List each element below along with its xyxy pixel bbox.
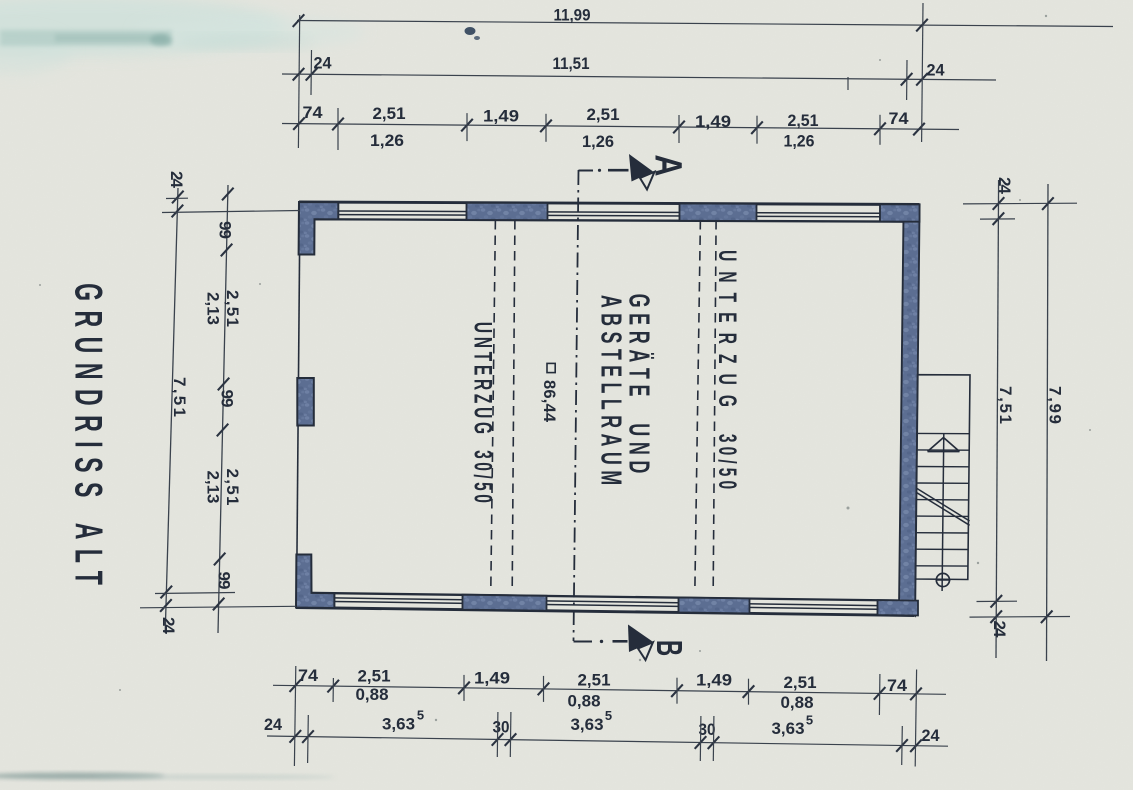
svg-text:99: 99: [215, 572, 234, 590]
svg-text:11,99: 11,99: [554, 6, 591, 25]
svg-text:30: 30: [493, 718, 510, 737]
svg-text:30/50: 30/50: [713, 434, 741, 489]
svg-text:2,51: 2,51: [358, 667, 391, 686]
svg-text:24: 24: [922, 726, 941, 745]
svg-text:2,51: 2,51: [578, 671, 611, 690]
svg-text:1,26: 1,26: [784, 132, 815, 151]
svg-text:2,13: 2,13: [204, 292, 223, 325]
svg-text:3,63: 3,63: [382, 715, 415, 734]
svg-text:0,88: 0,88: [356, 685, 389, 704]
svg-text:24: 24: [927, 61, 946, 80]
svg-text:2,51: 2,51: [788, 111, 819, 130]
svg-text:1,26: 1,26: [582, 132, 614, 151]
svg-text:1,49: 1,49: [696, 671, 732, 690]
svg-text:24: 24: [995, 177, 1014, 195]
svg-text:74: 74: [889, 109, 910, 128]
svg-text:1,49: 1,49: [474, 669, 510, 688]
svg-text:99: 99: [218, 390, 237, 408]
svg-text:24: 24: [264, 715, 283, 734]
svg-text:99: 99: [216, 221, 235, 239]
svg-text:7,51: 7,51: [996, 386, 1015, 424]
svg-text:74: 74: [298, 666, 319, 685]
svg-text:3,63: 3,63: [772, 719, 805, 738]
svg-text:2,51: 2,51: [784, 673, 817, 692]
svg-text:B: B: [649, 640, 689, 656]
svg-text:74: 74: [887, 676, 908, 695]
svg-text:24: 24: [167, 171, 186, 189]
svg-text:2,51: 2,51: [587, 105, 620, 124]
svg-text:7,51: 7,51: [170, 377, 189, 417]
svg-text:24: 24: [990, 621, 1009, 639]
svg-text:0,88: 0,88: [568, 692, 601, 711]
svg-text:ABSTELLRAUM: ABSTELLRAUM: [594, 295, 626, 485]
svg-text:A: A: [647, 155, 689, 177]
svg-text:24: 24: [159, 617, 178, 635]
svg-text:7,99: 7,99: [1046, 386, 1065, 424]
svg-text:24: 24: [314, 54, 333, 73]
svg-text:2,51: 2,51: [223, 469, 242, 506]
svg-text:1,49: 1,49: [483, 107, 519, 126]
svg-text:0,88: 0,88: [781, 693, 814, 712]
svg-text:2,51: 2,51: [223, 290, 242, 327]
svg-text:86,44: 86,44: [540, 380, 558, 423]
svg-text:30/50: 30/50: [468, 450, 496, 503]
svg-text:5: 5: [605, 708, 612, 723]
svg-text:1,26: 1,26: [370, 131, 404, 150]
svg-text:1,49: 1,49: [695, 112, 731, 131]
svg-text:74: 74: [303, 103, 324, 122]
svg-text:2,51: 2,51: [373, 104, 406, 123]
svg-text:5: 5: [806, 713, 813, 728]
svg-text:5: 5: [417, 708, 424, 723]
svg-text:11,51: 11,51: [553, 54, 590, 73]
svg-text:3,63: 3,63: [571, 715, 604, 734]
svg-text:2,13: 2,13: [204, 471, 223, 504]
